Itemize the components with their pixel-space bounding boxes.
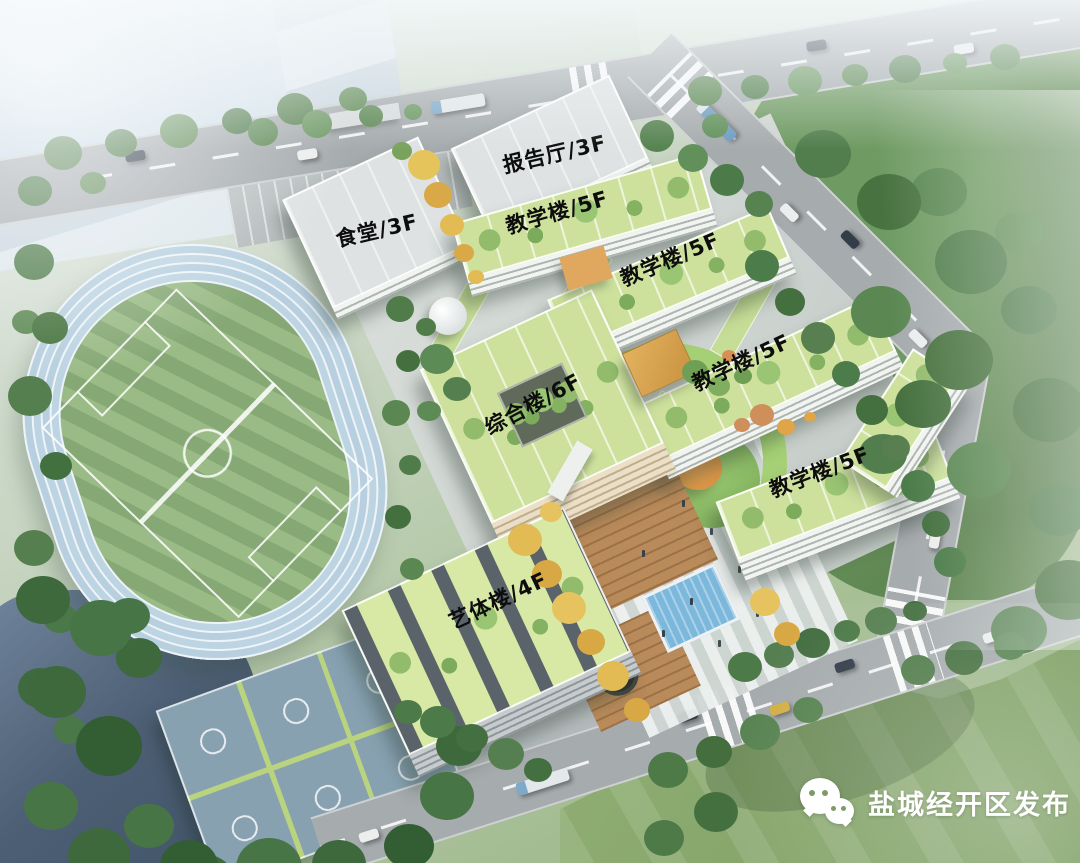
tree-cluster	[640, 120, 674, 152]
bus	[695, 100, 737, 142]
car	[358, 828, 380, 844]
penalty-box-south	[247, 486, 342, 582]
penalty-box-north	[76, 321, 171, 417]
campus-aerial-rendering: 报告厅/3F 食堂/3F 教学楼/5F 教学楼/5F 教学楼/5F 综合楼/6F…	[0, 0, 1080, 863]
tree-cluster	[420, 344, 454, 374]
tree-cluster	[248, 118, 278, 146]
car	[834, 658, 856, 674]
car	[982, 629, 1004, 645]
dome-structure	[429, 297, 467, 335]
tree-cluster	[44, 136, 82, 170]
tree-cluster	[420, 706, 456, 738]
car	[840, 229, 861, 250]
car	[769, 701, 791, 717]
autumn-trees	[750, 404, 774, 426]
car	[125, 150, 146, 163]
car	[297, 148, 318, 161]
tree-cluster	[648, 752, 688, 788]
tree-cluster	[728, 652, 762, 682]
watermark: 盐城经开区发布	[800, 778, 1071, 826]
yellow-tree-row	[508, 524, 542, 556]
street-tree-row	[745, 250, 779, 282]
tree-cluster	[795, 130, 851, 178]
watermark-text: 盐城经开区发布	[868, 783, 1071, 822]
car	[928, 528, 941, 549]
car	[779, 202, 800, 223]
car	[953, 42, 974, 55]
yellow-tree-row	[408, 150, 440, 180]
bus	[515, 767, 570, 796]
car	[907, 328, 928, 349]
crosswalk	[883, 623, 944, 692]
car	[806, 39, 827, 52]
tree-cluster	[386, 296, 414, 322]
chat-bubble-small	[825, 798, 854, 824]
wechat-icon	[800, 778, 856, 826]
bus	[430, 93, 485, 115]
tree-cluster	[16, 576, 70, 624]
tree-cluster	[14, 244, 54, 280]
tree-cluster	[688, 76, 722, 106]
soccer-pitch	[42, 288, 374, 618]
